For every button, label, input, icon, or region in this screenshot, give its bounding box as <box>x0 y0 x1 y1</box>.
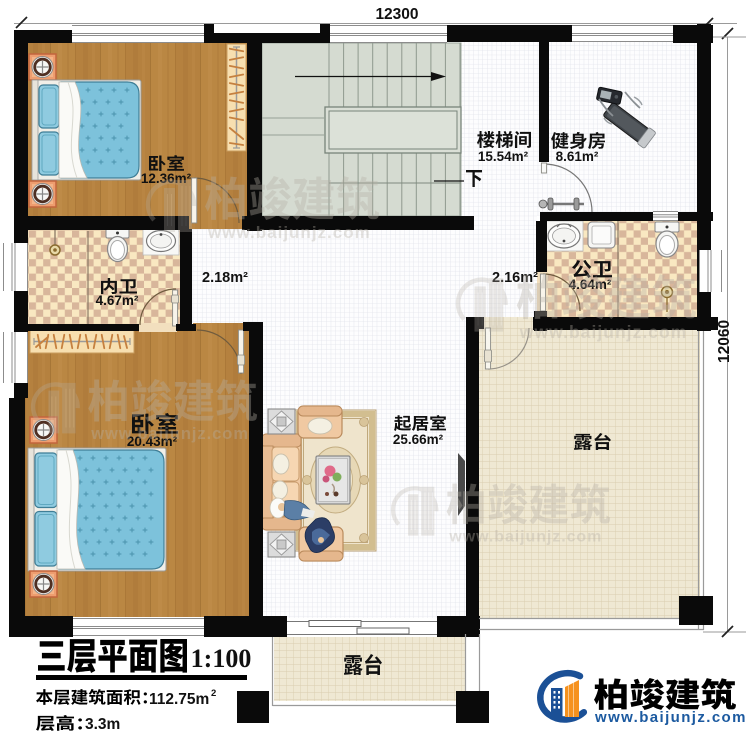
svg-text:12300: 12300 <box>375 6 418 23</box>
svg-text:1:100: 1:100 <box>191 644 252 673</box>
svg-text:3.3m: 3.3m <box>85 716 120 733</box>
svg-text:www.baijunjz.com: www.baijunjz.com <box>594 709 747 726</box>
svg-text:www.baijunjz.com: www.baijunjz.com <box>448 528 602 545</box>
svg-text:25.66m²: 25.66m² <box>393 432 444 447</box>
svg-text:4.67m²: 4.67m² <box>96 293 139 308</box>
svg-text:15.54m²: 15.54m² <box>478 149 529 164</box>
svg-text:www.baijunjz.com: www.baijunjz.com <box>90 425 249 443</box>
svg-text:www.baijunjz.com: www.baijunjz.com <box>519 322 688 342</box>
svg-text:8.61m²: 8.61m² <box>556 149 599 164</box>
svg-text:112.75m: 112.75m <box>149 691 209 708</box>
svg-text:2: 2 <box>211 688 216 699</box>
svg-text:www.baijunjz.com: www.baijunjz.com <box>207 223 371 242</box>
svg-text:12060: 12060 <box>716 320 733 363</box>
svg-text:2.18m²: 2.18m² <box>202 270 248 286</box>
